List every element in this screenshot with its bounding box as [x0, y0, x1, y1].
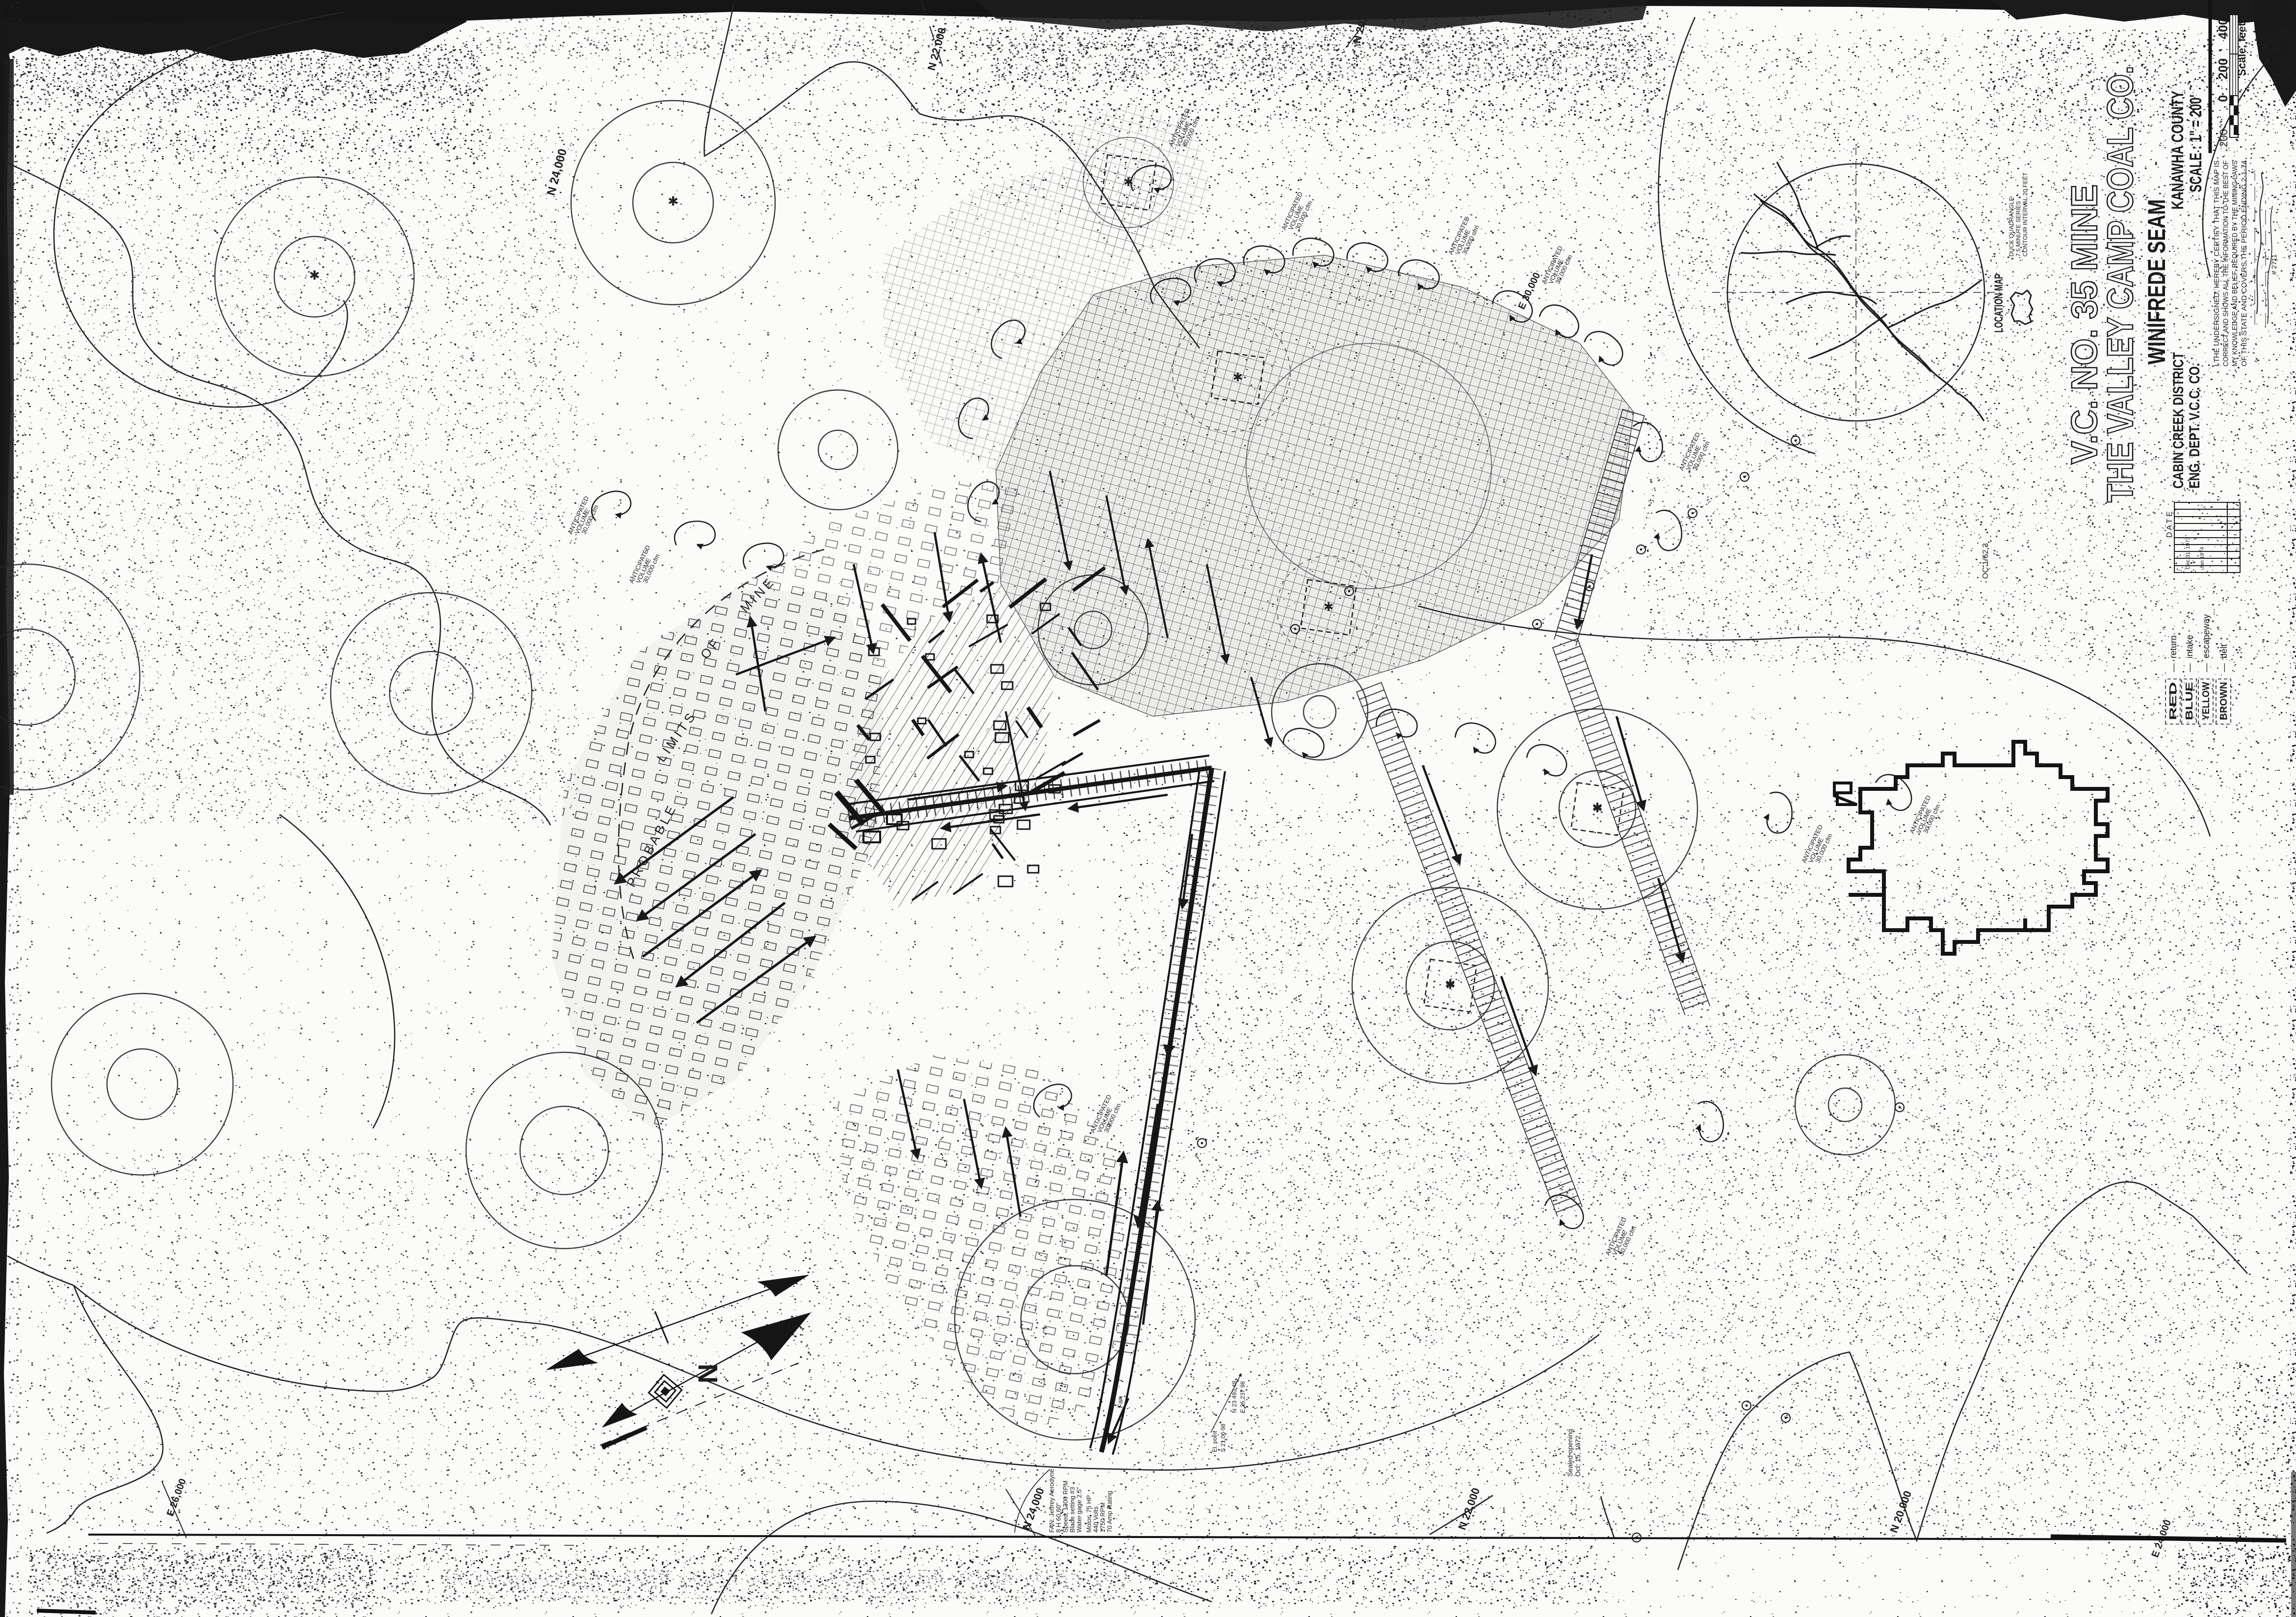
svg-text:intake: intake: [2185, 635, 2194, 658]
svg-text:CABIN CREEK DISTRICT: CABIN CREEK DISTRICT: [2170, 352, 2187, 489]
svg-text:DUCK QUADRANGLE: DUCK QUADRANGLE: [2008, 197, 2015, 257]
svg-text:I THE UNDERSIGNED, HEREBY CERT: I THE UNDERSIGNED, HEREBY CERTIFY THAT T…: [2213, 160, 2221, 366]
svg-text:E 26,237 98: E 26,237 98: [1239, 1381, 1246, 1413]
svg-text:✱: ✱: [1592, 802, 1602, 815]
svg-text:LOCATION MAP: LOCATION MAP: [1992, 274, 2006, 333]
svg-text:Sealed opening: Sealed opening: [1566, 1429, 1574, 1477]
svg-text:Dec 31, 1973: Dec 31, 1973: [2185, 537, 2191, 569]
svg-text:200: 200: [2216, 58, 2230, 79]
svg-text:Jan 1974: Jan 1974: [2199, 547, 2205, 569]
svg-text:Fan: Fan: [1116, 1396, 1124, 1408]
svg-text:return: return: [2168, 635, 2178, 658]
svg-text:YELLOW: YELLOW: [2201, 682, 2212, 720]
svg-text:✱: ✱: [309, 268, 320, 283]
svg-text:FAN: Jeffrey Aerodyne: FAN: Jeffrey Aerodyne: [1048, 1469, 1055, 1533]
svg-text:OF THIS STATE AND COVERS TH: OF THIS STATE AND COVERS THE PERIOD ENDI…: [2240, 160, 2248, 366]
svg-text:—: —: [2185, 663, 2194, 672]
svg-text:Motor: 75 HP: Motor: 75 HP: [1085, 1495, 1093, 1533]
svg-text:1750 RPM: 1750 RPM: [1099, 1503, 1106, 1533]
svg-text:—: —: [2168, 663, 2178, 672]
svg-text:S 21,06 98: S 21,06 98: [1220, 1424, 1226, 1452]
svg-text:70 Amp Rating: 70 Amp Rating: [1106, 1491, 1113, 1533]
svg-text:# 2711: # 2711: [2270, 254, 2278, 275]
svg-text:escapeway: escapeway: [2201, 614, 2211, 658]
svg-text:✱: ✱: [1123, 176, 1133, 189]
svg-text:8 H 60 60": 8 H 60 60": [1055, 1503, 1062, 1533]
svg-text:✱: ✱: [1445, 979, 1455, 992]
svg-text:El. point: El. point: [1211, 1431, 1218, 1452]
svg-text:ENG. DEPT. V.C.C. CO.: ENG. DEPT. V.C.C. CO.: [2187, 363, 2203, 489]
svg-text:CONTOUR INTERVAL 20 FEET: CONTOUR INTERVAL 20 FEET: [2022, 172, 2029, 257]
svg-text:Speed, 1300 RPM: Speed, 1300 RPM: [1062, 1481, 1069, 1533]
svg-text:CORRECT AND SHOWS ALL THE INFO: CORRECT AND SHOWS ALL THE INFORMATION TO…: [2222, 160, 2230, 366]
svg-text:200: 200: [2218, 129, 2230, 147]
svg-text:✱: ✱: [1233, 371, 1243, 384]
svg-text:7.5 MINUTE SERIES: 7.5 MINUTE SERIES: [2015, 201, 2022, 257]
svg-text:Blade setting #3: Blade setting #3: [1069, 1487, 1076, 1533]
svg-text:—: —: [2219, 663, 2229, 672]
svg-text:N 23 493 48: N 23 493 48: [1231, 1381, 1238, 1413]
svg-text:—: —: [2201, 663, 2211, 672]
svg-text:belt: belt: [2219, 644, 2229, 658]
svg-text:BROWN: BROWN: [2218, 682, 2229, 720]
svg-text:✱: ✱: [668, 194, 678, 209]
svg-text:THE VALLEY CAMP COAL CO.: THE VALLEY CAMP COAL CO.: [2100, 66, 2140, 502]
svg-text:D A T E: D A T E: [2166, 511, 2174, 538]
svg-text:MY KNOWLEDGE AND BELIEF, REQUI: MY KNOWLEDGE AND BELIEF, REQUIRED BY THE…: [2231, 160, 2239, 366]
svg-text:RED: RED: [2168, 682, 2179, 720]
svg-text:400: 400: [2216, 18, 2230, 39]
svg-text:KANAWHA COUNTY: KANAWHA COUNTY: [2168, 91, 2187, 209]
svg-text:Scale, feet: Scale, feet: [2236, 22, 2248, 76]
svg-text:Oct. 15, 1972: Oct. 15, 1972: [1574, 1435, 1582, 1477]
svg-text:✱: ✱: [1324, 600, 1333, 614]
svg-text:440 Volts: 440 Volts: [1092, 1506, 1099, 1533]
svg-text:BLUE: BLUE: [2184, 682, 2195, 720]
svg-text:WINIFREDE SEAM: WINIFREDE SEAM: [2143, 199, 2170, 365]
svg-text:0: 0: [2216, 95, 2230, 102]
svg-text:OC 1/62 3: OC 1/62 3: [1982, 543, 1990, 579]
svg-text:SCALE : 1" = 200': SCALE : 1" = 200': [2187, 95, 2205, 192]
svg-text:N: N: [692, 1364, 723, 1383]
svg-text:V.C. NO. 35 MINE: V.C. NO. 35 MINE: [2064, 184, 2105, 464]
svg-text:Water gage 2.5": Water gage 2.5": [1075, 1487, 1083, 1533]
